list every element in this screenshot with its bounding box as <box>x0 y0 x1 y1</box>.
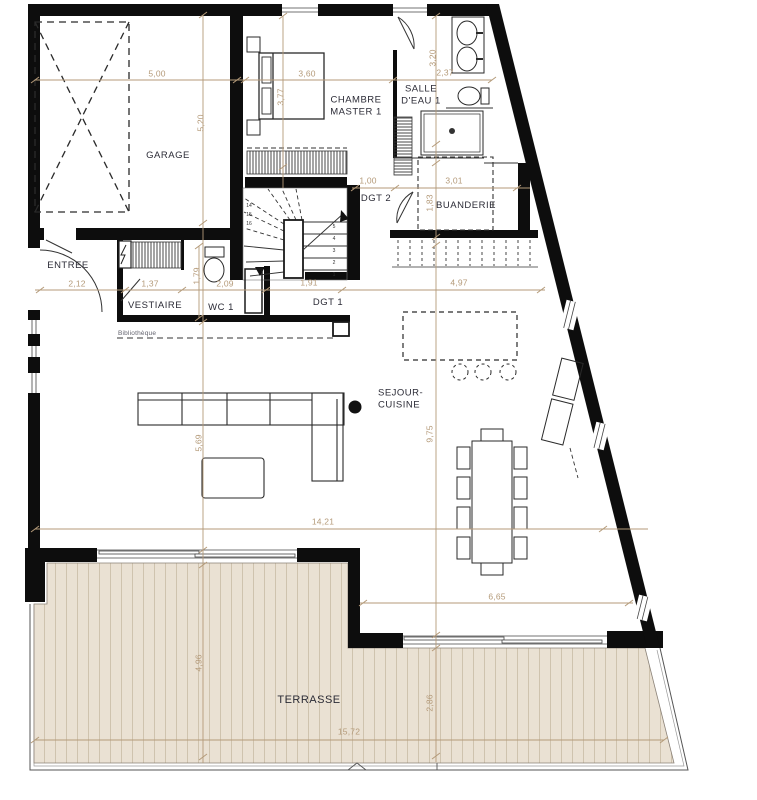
nightstand <box>247 37 260 52</box>
buanderie-dashed-outline <box>418 157 493 230</box>
stair-break-line <box>303 213 344 250</box>
sink <box>457 21 477 45</box>
towel-radiator <box>394 117 412 175</box>
dining-set <box>457 429 527 575</box>
toilet-tank <box>205 247 224 257</box>
wardrobe-chambre <box>247 148 347 174</box>
chair <box>481 429 503 442</box>
sideboard-dashed <box>570 448 578 478</box>
laundry-closets <box>392 157 538 267</box>
kitchen-island <box>403 312 517 360</box>
toilet-bowl <box>458 87 480 105</box>
structural-column <box>349 401 362 414</box>
staircase <box>243 188 349 336</box>
sink <box>457 47 477 71</box>
nightstand <box>247 120 260 135</box>
toilet-tank <box>481 88 489 104</box>
chair <box>514 447 527 469</box>
sideboard <box>542 358 584 445</box>
chair <box>457 447 470 469</box>
living-room <box>138 393 344 498</box>
wardrobe-vestiaire <box>129 242 181 268</box>
bed <box>247 37 324 135</box>
bathroom-fixtures <box>394 17 489 175</box>
chair <box>481 562 503 575</box>
stool <box>452 364 468 380</box>
stair-void <box>284 220 303 278</box>
chair <box>457 507 470 529</box>
sofa-chaise <box>312 393 343 481</box>
shower-drain <box>449 128 455 134</box>
toilet-bowl <box>204 258 224 282</box>
chair <box>514 507 527 529</box>
coffee-table <box>202 458 264 498</box>
sofa <box>138 393 344 425</box>
newel-post <box>333 322 349 336</box>
stool <box>475 364 491 380</box>
parking-space <box>35 22 129 212</box>
chair <box>514 537 527 559</box>
kitchen <box>349 312 518 414</box>
chair <box>457 537 470 559</box>
chair <box>514 477 527 499</box>
floor-plan-drawing <box>0 0 757 800</box>
stool <box>500 364 516 380</box>
entree-door-arc <box>40 250 102 312</box>
terrace-step-mark <box>348 763 366 770</box>
vestiaire-fittings <box>119 241 181 268</box>
dining-table <box>472 441 512 563</box>
floor-plan: GARAGECHAMBRE MASTER 1SALLE D'EAU 1ENTRE… <box>0 0 757 800</box>
wc1-fixtures <box>204 247 224 282</box>
chair <box>457 477 470 499</box>
